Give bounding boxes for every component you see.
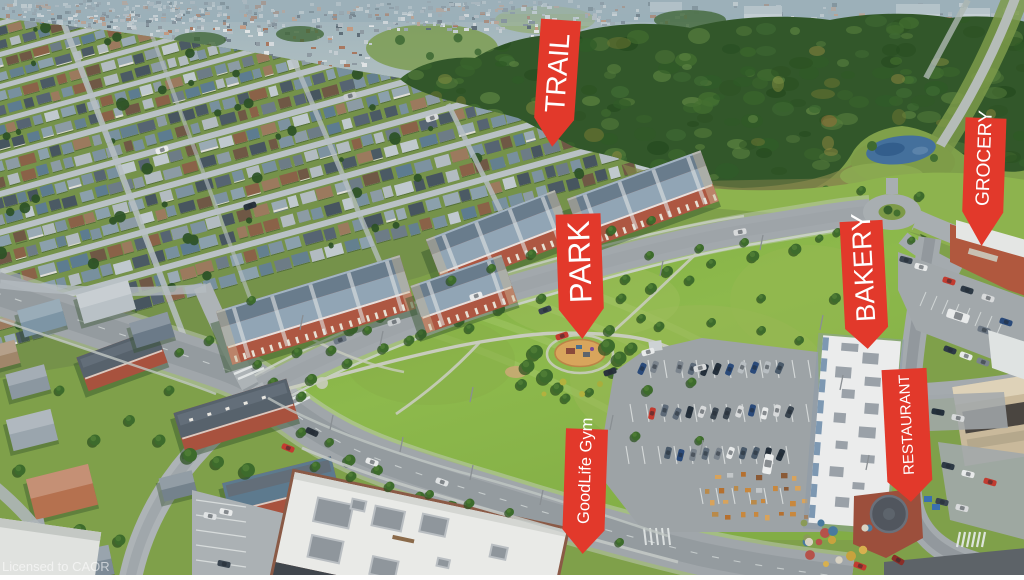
svg-text:PARK: PARK (561, 220, 599, 304)
svg-text:GROCERY: GROCERY (972, 110, 996, 207)
svg-text:TRAIL: TRAIL (539, 33, 575, 114)
svg-text:GoodLife Gym: GoodLife Gym (575, 417, 597, 524)
svg-text:Licensed to CAOR: Licensed to CAOR (2, 559, 110, 574)
svg-text:BAKERY: BAKERY (846, 212, 882, 322)
